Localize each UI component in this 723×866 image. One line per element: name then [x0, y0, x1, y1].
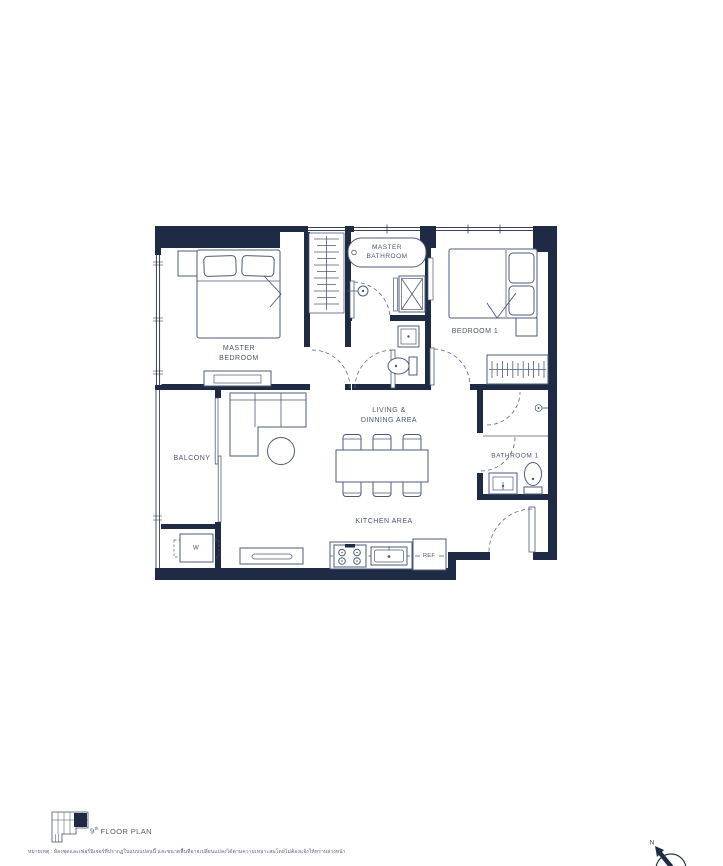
bathroom1-fixtures: [483, 405, 548, 494]
master-bedroom-label-line1: MASTER: [219, 344, 259, 354]
coffee-table: [268, 438, 295, 465]
pillow: [204, 255, 237, 276]
pillow: [509, 253, 534, 283]
toilet: [388, 358, 409, 374]
master-bedroom-label-line2: BEDROOM: [219, 354, 259, 364]
toilet-tank: [409, 357, 417, 375]
living-furniture: [230, 393, 306, 564]
master-bathroom-label-line2: BATHROOM: [366, 252, 407, 261]
floor-plan-page: MASTER BEDROOM MASTER BATHROOM BEDROOM 1…: [0, 0, 723, 866]
bathroom1-label: BATHROOM 1: [491, 451, 539, 460]
dining-table: [336, 450, 428, 482]
bedroom1-door-leaf: [430, 348, 434, 385]
floor-ordinal: th: [95, 826, 99, 831]
master-bedroom-door-arc: [312, 350, 350, 388]
master-bathroom-label: MASTER BATHROOM: [366, 243, 407, 261]
floor-plan-drawing: [0, 0, 723, 866]
shower-door-arc: [487, 392, 520, 425]
dining-furniture: [336, 435, 428, 497]
shower-panel: [394, 278, 398, 311]
living-dining-label-line2: DINNING AREA: [361, 416, 417, 426]
bedroom1-furniture: [428, 249, 548, 384]
bedside-shelf: [516, 318, 537, 336]
compass-north-label: N: [650, 840, 655, 847]
unit-highlight: [74, 813, 87, 827]
toilet-tank: [524, 487, 542, 494]
master-closet: [309, 233, 344, 313]
pillow: [509, 286, 534, 315]
tub-faucet: [352, 250, 357, 255]
disclaimer-text: หมายเหตุ : ห้องชุดและเฟอร์นิเจอร์ที่ปราก…: [28, 848, 346, 856]
living-dining-label-line1: LIVING &: [361, 406, 417, 416]
living-dining-label: LIVING & DINNING AREA: [361, 406, 417, 426]
bedroom1-label: BEDROOM 1: [452, 327, 499, 337]
sliding-door: [215, 398, 221, 522]
compass-icon: [655, 846, 686, 866]
nightstand: [178, 251, 197, 276]
floor-text: FLOOR PLAN: [100, 827, 152, 836]
master-bath-door-leaf: [350, 281, 354, 318]
bedroom1-door-arc: [434, 349, 470, 385]
master-bedroom-label: MASTER BEDROOM: [219, 344, 259, 364]
toilet-door-arc: [355, 350, 393, 388]
wall-panel: [428, 258, 433, 300]
entry-door-arc: [489, 509, 532, 552]
fridge-label: REF: [422, 553, 436, 559]
washer-label: W: [193, 545, 199, 552]
pillow: [242, 255, 275, 276]
master-bedroom-furniture: [178, 250, 281, 386]
balcony-label: BALCONY: [174, 454, 211, 464]
key-plan-icon: [52, 812, 88, 842]
floor-plan-title: 9thFLOOR PLAN: [90, 826, 152, 836]
entry-door-leaf: [529, 507, 535, 552]
stove: [334, 545, 366, 567]
master-bathroom-label-line1: MASTER: [366, 243, 407, 252]
toilet: [525, 463, 542, 486]
kitchen-label: KITCHEN AREA: [355, 517, 412, 527]
